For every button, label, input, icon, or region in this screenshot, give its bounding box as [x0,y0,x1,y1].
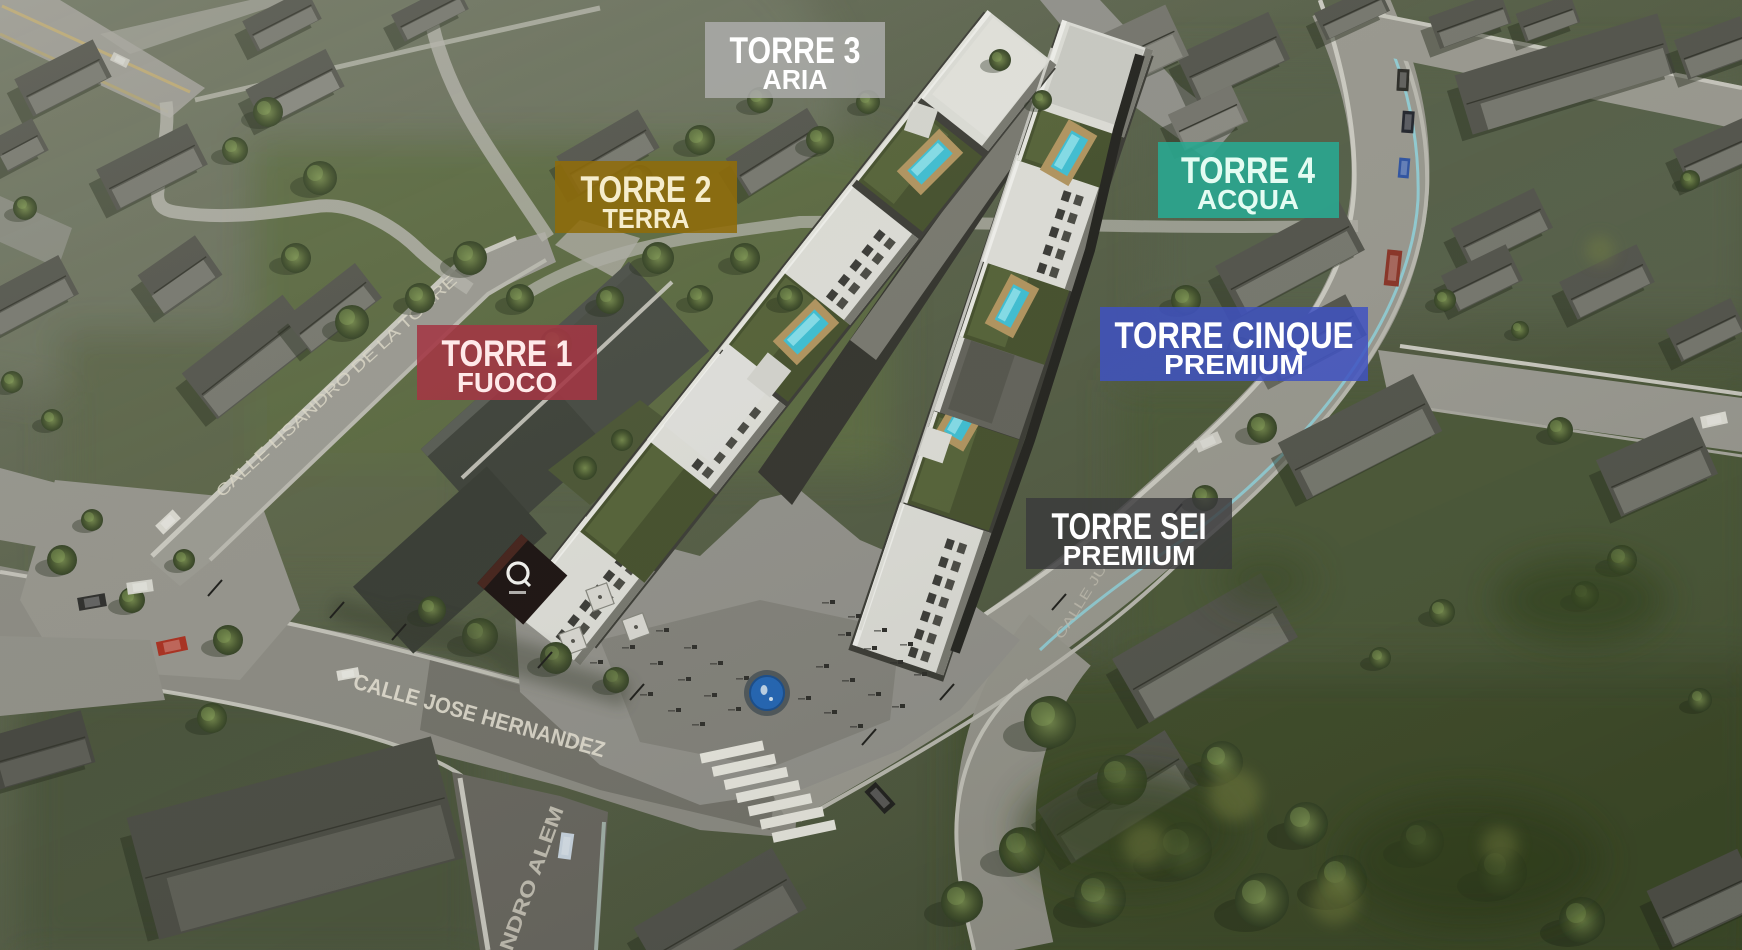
svg-text:PREMIUM: PREMIUM [1063,540,1196,571]
svg-text:TERRA: TERRA [603,203,690,234]
svg-text:ACQUA: ACQUA [1197,184,1299,215]
svg-text:FUOCO: FUOCO [457,367,557,398]
svg-text:ARIA: ARIA [763,64,828,95]
svg-text:PREMIUM: PREMIUM [1164,349,1304,380]
